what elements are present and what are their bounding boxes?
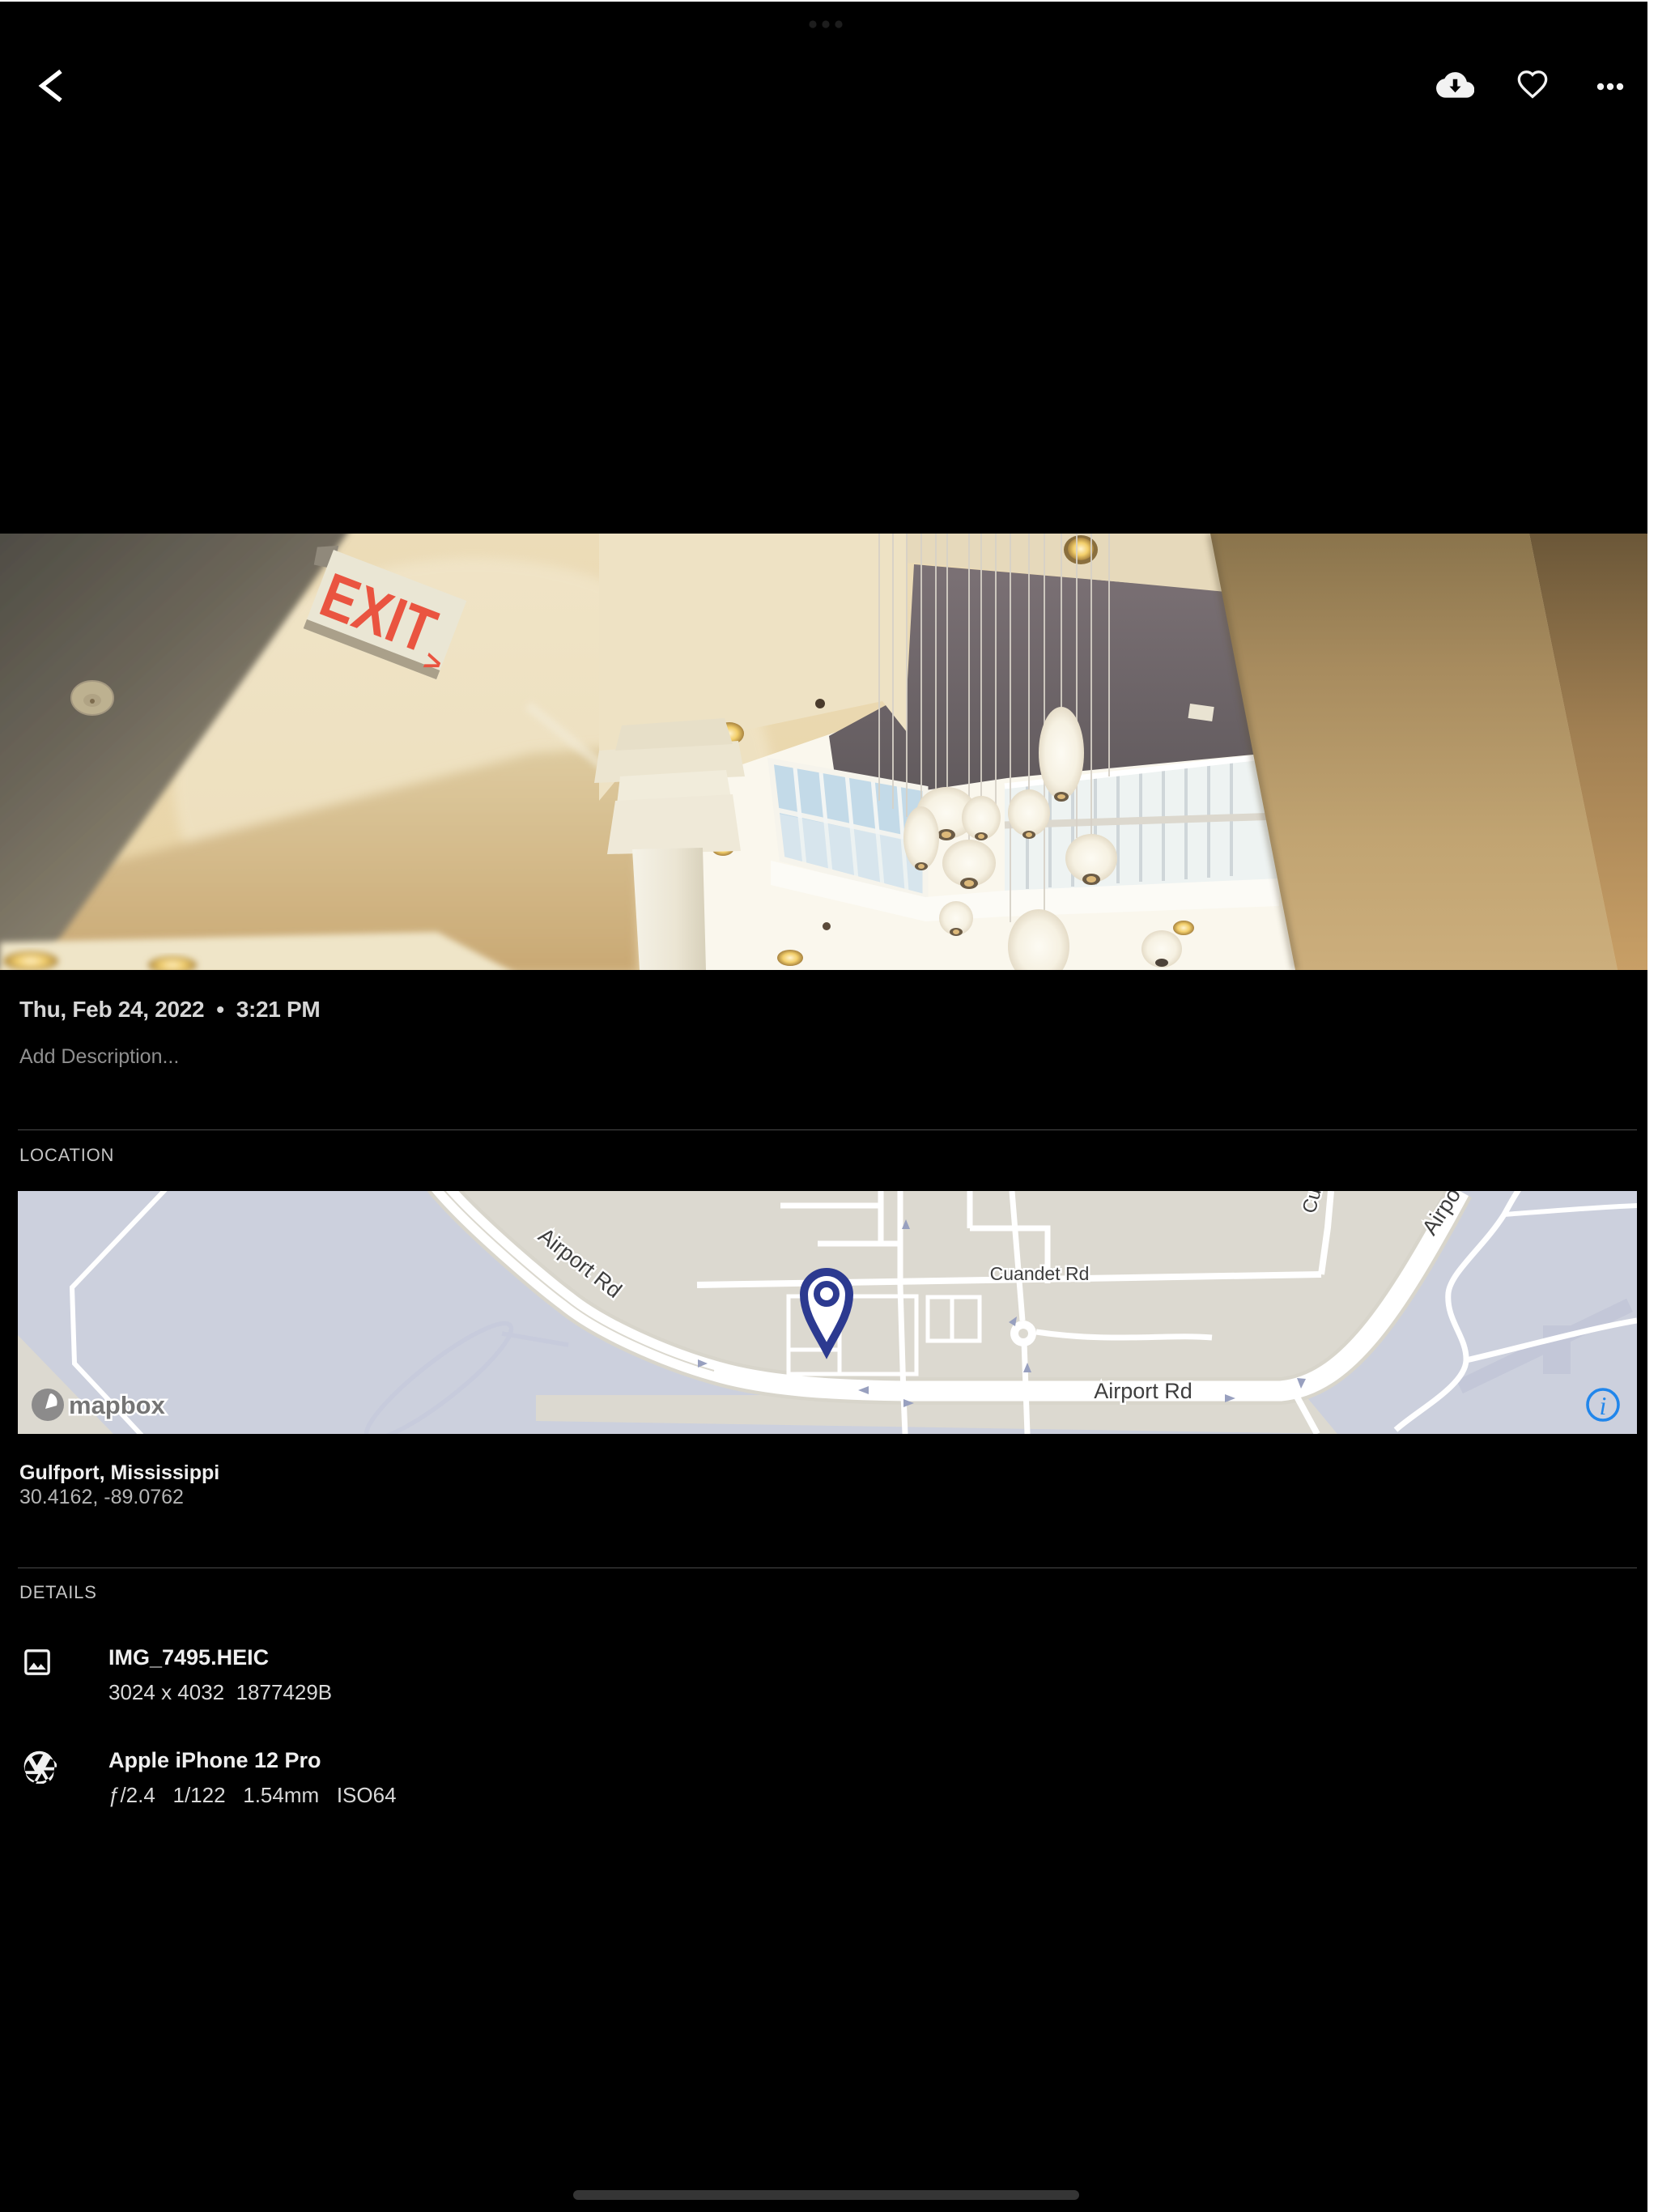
svg-text:Cuandet Rd: Cuandet Rd: [990, 1263, 1090, 1284]
svg-text:Airport Rd: Airport Rd: [1094, 1379, 1192, 1403]
svg-text:i: i: [1600, 1391, 1607, 1420]
svg-text:mapbox: mapbox: [69, 1391, 166, 1419]
